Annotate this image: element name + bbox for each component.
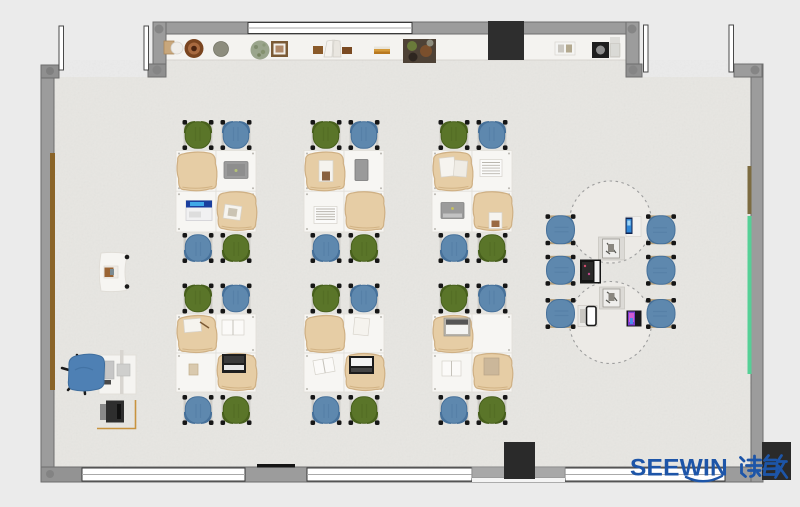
svg-text:SEEWIN: SEEWIN	[630, 455, 728, 482]
